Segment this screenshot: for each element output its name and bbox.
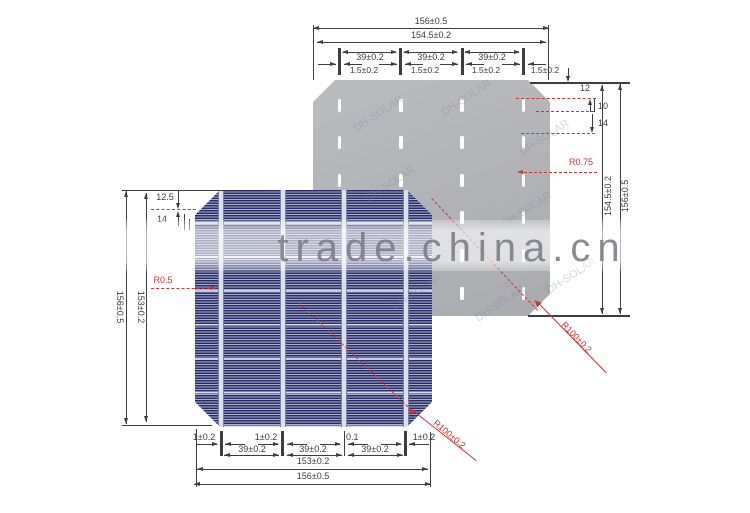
dim-back-overall-height: 156±0.5	[620, 166, 630, 226]
solder-pad	[338, 99, 342, 112]
dim-back-busbar-width: 1.5±0.2	[472, 66, 500, 75]
arrowhead	[176, 211, 180, 217]
arrowhead	[336, 453, 342, 457]
arrowhead	[464, 50, 470, 54]
site-watermark: trade.china.cn	[277, 226, 626, 271]
busbar-tick	[338, 48, 341, 75]
dim-back-active-width: 154.5±0.2	[411, 31, 451, 40]
arrowhead	[618, 84, 622, 90]
arrowhead	[391, 50, 397, 54]
arrowhead	[124, 191, 128, 197]
arrowhead	[517, 170, 523, 174]
arrowhead	[452, 62, 458, 66]
reference-line	[151, 288, 215, 289]
dim-front-pitch: 39±0.2	[297, 445, 328, 454]
arrowhead	[212, 442, 218, 446]
dim-line	[194, 484, 431, 485]
dim-back-busbar-width: 1.5±0.2	[411, 66, 439, 75]
arrowhead	[273, 442, 279, 446]
dim-back-corner-radius: R100±0.2	[551, 312, 601, 363]
dim-front-pitch: 39±0.2	[359, 445, 390, 454]
arrowhead	[618, 308, 622, 314]
dim-back-pad-gap: 14	[598, 119, 608, 128]
arrowhead	[124, 418, 128, 424]
arrowhead	[600, 85, 604, 91]
busbar-tick	[281, 431, 284, 456]
dim-line	[313, 28, 549, 29]
arrowhead	[224, 453, 230, 457]
arrowhead	[144, 416, 148, 422]
extension-line	[430, 432, 431, 487]
pointer-line	[592, 114, 593, 128]
arrowhead	[197, 467, 203, 471]
arrowhead	[287, 442, 293, 446]
reference-line	[151, 209, 196, 210]
dim-line	[224, 455, 279, 456]
arrowhead	[540, 40, 546, 44]
reference-line	[519, 172, 597, 173]
dim-back-pitch: 39±0.2	[356, 53, 383, 62]
dim-back-pad-radius: R0.75	[569, 158, 593, 167]
dim-back-overall-width: 156±0.5	[415, 17, 447, 26]
solder-pad	[460, 287, 464, 300]
extension-line	[528, 315, 630, 317]
dim-back-pad-length: 10	[598, 102, 608, 111]
busbar-tick	[344, 431, 345, 456]
dim-front-active-height: 153±0.2	[136, 277, 146, 337]
arrowhead	[452, 50, 458, 54]
extension-line	[122, 190, 224, 191]
arrowhead	[194, 482, 200, 486]
dim-front-busbar-radius: R0.5	[153, 276, 172, 285]
solder-pad	[460, 136, 464, 149]
reference-line	[536, 111, 594, 112]
solar-cell-dimension-diagram: 156±0.5 154.5±0.2 39±0.2 39±0.2 39±0.2 1…	[0, 0, 750, 513]
dim-back-busbar-width: 1.5±0.2	[350, 66, 378, 75]
busbar-tick	[522, 48, 525, 75]
arrowhead	[422, 467, 428, 471]
pointer-line	[594, 99, 595, 112]
arrowhead	[600, 308, 604, 314]
solder-pad	[522, 99, 526, 112]
arrowhead	[335, 442, 341, 446]
solder-pad	[460, 174, 464, 187]
extension-line	[122, 425, 212, 426]
busbar-tick	[220, 431, 223, 456]
arrowhead	[211, 286, 217, 290]
arrowhead	[273, 453, 279, 457]
arrowhead	[409, 442, 415, 446]
dim-back-pitch: 39±0.2	[417, 53, 444, 62]
arrowhead	[403, 50, 409, 54]
arrowhead	[287, 453, 293, 457]
busbar-tick	[399, 48, 402, 75]
arrowhead	[225, 442, 231, 446]
arrowhead	[514, 62, 520, 66]
arrowhead	[396, 442, 402, 446]
arrowhead	[330, 62, 336, 66]
dim-front-overall-height: 156±0.5	[115, 277, 125, 337]
arrowhead	[514, 50, 520, 54]
dim-front-busbar-width: 1±0.2	[413, 433, 435, 442]
solder-pad	[338, 174, 342, 187]
dim-line	[348, 455, 403, 456]
dim-line	[317, 42, 546, 43]
dim-front-edge-offset: 12.5	[156, 193, 174, 202]
extension-line	[313, 25, 314, 80]
arrowhead	[588, 99, 592, 105]
dim-back-busbar-width: 1.5±0.2	[531, 66, 559, 75]
solder-pad	[522, 174, 526, 187]
arrowhead	[348, 442, 354, 446]
arrowhead	[566, 76, 570, 82]
dim-line	[197, 469, 428, 470]
solder-pad	[338, 136, 342, 149]
arrowhead	[391, 62, 397, 66]
reference-line	[516, 98, 596, 99]
solder-pad	[399, 136, 403, 149]
dim-front-pitch: 39±0.2	[236, 445, 267, 454]
arrowhead	[342, 50, 348, 54]
arrowhead	[317, 40, 323, 44]
dim-back-pitch: 39±0.2	[478, 53, 505, 62]
arrowhead	[144, 193, 148, 199]
arrowhead	[397, 453, 403, 457]
dim-back-pad-offset: 12	[580, 84, 590, 93]
dim-back-active-height: 154.5±0.2	[603, 166, 613, 226]
dim-front-overall-width: 156±0.5	[295, 472, 331, 481]
dim-front-active-width: 153±0.2	[295, 457, 331, 466]
extension-line	[196, 429, 197, 487]
busbar-tick	[404, 431, 407, 456]
arrowhead	[348, 453, 354, 457]
